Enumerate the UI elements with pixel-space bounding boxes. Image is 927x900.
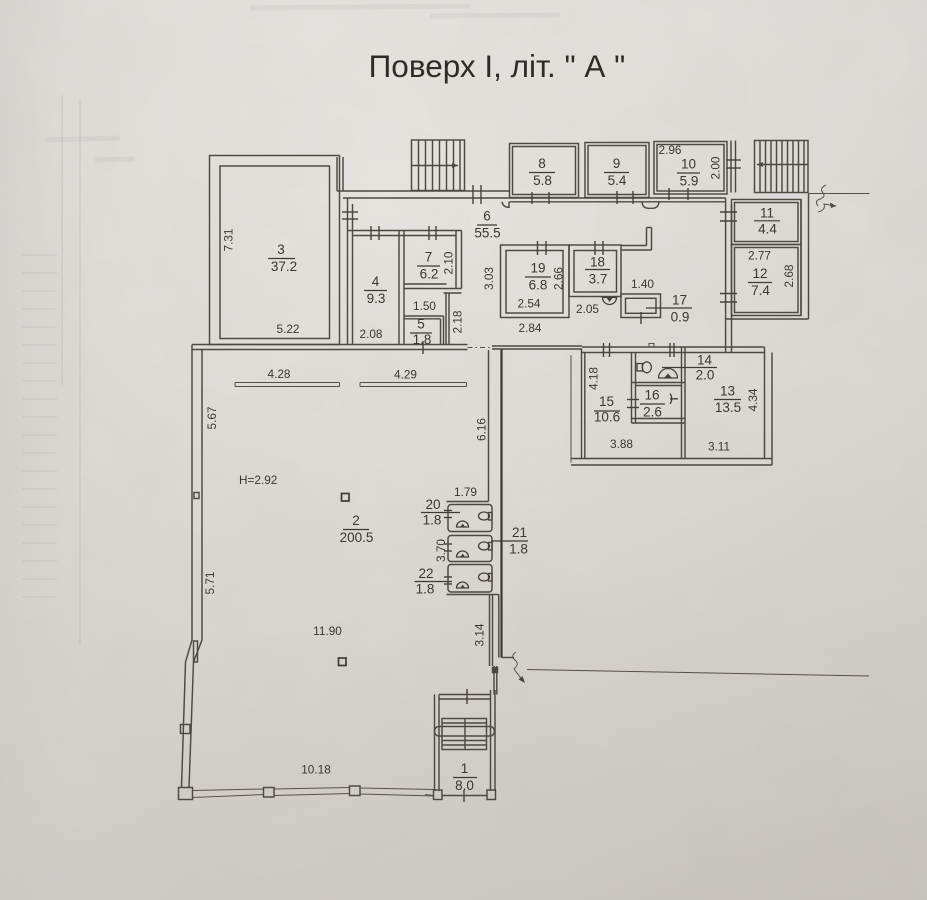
svg-text:1.8: 1.8: [509, 542, 528, 557]
svg-text:6.2: 6.2: [420, 267, 439, 282]
svg-text:3.14: 3.14: [473, 623, 487, 646]
svg-text:5.4: 5.4: [608, 173, 627, 188]
svg-text:2.54: 2.54: [518, 297, 541, 311]
svg-text:15: 15: [599, 394, 614, 409]
svg-text:3.11: 3.11: [708, 440, 730, 454]
svg-text:8: 8: [538, 156, 546, 171]
svg-text:3.7: 3.7: [589, 272, 608, 287]
svg-text:6: 6: [483, 209, 491, 224]
svg-text:6.16: 6.16: [475, 418, 489, 441]
svg-text:3: 3: [277, 242, 285, 257]
svg-text:20: 20: [425, 497, 440, 512]
svg-text:1: 1: [461, 761, 469, 776]
svg-text:19: 19: [530, 261, 545, 276]
svg-text:37.2: 37.2: [271, 259, 297, 274]
svg-text:Н=2.92: Н=2.92: [239, 473, 277, 487]
svg-text:10: 10: [681, 157, 696, 172]
svg-text:10.6: 10.6: [594, 410, 620, 425]
svg-text:5.8: 5.8: [533, 173, 552, 188]
svg-text:7: 7: [425, 250, 433, 265]
svg-text:13.5: 13.5: [715, 400, 741, 415]
svg-text:3.88: 3.88: [610, 437, 633, 451]
svg-text:55.5: 55.5: [474, 226, 500, 241]
svg-text:8.0: 8.0: [455, 778, 474, 793]
svg-text:2.00: 2.00: [709, 156, 723, 179]
svg-text:4.28: 4.28: [268, 367, 291, 381]
svg-text:21: 21: [512, 525, 527, 540]
svg-text:7.4: 7.4: [751, 283, 770, 298]
svg-text:2.66: 2.66: [552, 267, 566, 290]
svg-text:4.29: 4.29: [394, 368, 417, 382]
svg-text:7.31: 7.31: [222, 229, 236, 252]
svg-text:2.6: 2.6: [643, 405, 662, 420]
svg-text:2.18: 2.18: [451, 310, 465, 333]
svg-text:4.4: 4.4: [758, 222, 777, 237]
svg-text:2.0: 2.0: [696, 368, 715, 383]
svg-text:13: 13: [720, 384, 735, 399]
svg-text:9.3: 9.3: [367, 291, 386, 306]
svg-text:11.90: 11.90: [313, 624, 342, 638]
svg-text:4.34: 4.34: [746, 388, 760, 411]
svg-text:10.18: 10.18: [301, 763, 331, 777]
svg-text:4: 4: [372, 274, 380, 289]
svg-text:1.40: 1.40: [631, 277, 654, 291]
svg-text:1.50: 1.50: [413, 299, 436, 313]
svg-text:14: 14: [697, 353, 713, 368]
svg-text:4.18: 4.18: [587, 367, 601, 390]
svg-text:5.22: 5.22: [277, 322, 300, 336]
svg-text:5.67: 5.67: [205, 407, 219, 430]
svg-text:2.68: 2.68: [782, 264, 796, 287]
svg-text:16: 16: [644, 388, 659, 403]
svg-text:9: 9: [613, 156, 621, 171]
svg-text:1.8: 1.8: [413, 332, 432, 347]
svg-text:1.79: 1.79: [454, 485, 477, 499]
svg-text:22: 22: [418, 566, 433, 581]
svg-text:5.9: 5.9: [680, 174, 699, 189]
svg-text:12: 12: [752, 266, 767, 281]
svg-text:1.8: 1.8: [416, 582, 435, 597]
svg-text:Поверх І, літ. " А ": Поверх І, літ. " А ": [369, 48, 626, 84]
svg-text:6.8: 6.8: [529, 278, 548, 293]
svg-text:0.9: 0.9: [671, 310, 690, 325]
svg-text:2.84: 2.84: [519, 321, 542, 335]
svg-text:2.05: 2.05: [576, 302, 599, 316]
svg-text:2.77: 2.77: [748, 249, 771, 263]
svg-text:5: 5: [417, 317, 425, 332]
svg-text:17: 17: [672, 293, 687, 308]
svg-text:200.5: 200.5: [340, 530, 374, 545]
svg-text:3.03: 3.03: [482, 267, 496, 290]
svg-text:2.96: 2.96: [659, 143, 682, 157]
svg-text:2.10: 2.10: [442, 251, 456, 274]
svg-text:2.08: 2.08: [360, 327, 383, 341]
svg-text:5.71: 5.71: [203, 572, 217, 595]
svg-text:11: 11: [760, 206, 774, 221]
svg-text:18: 18: [590, 255, 605, 270]
svg-text:3.70: 3.70: [434, 539, 448, 562]
svg-text:2: 2: [352, 513, 360, 528]
svg-text:1.8: 1.8: [423, 513, 442, 528]
